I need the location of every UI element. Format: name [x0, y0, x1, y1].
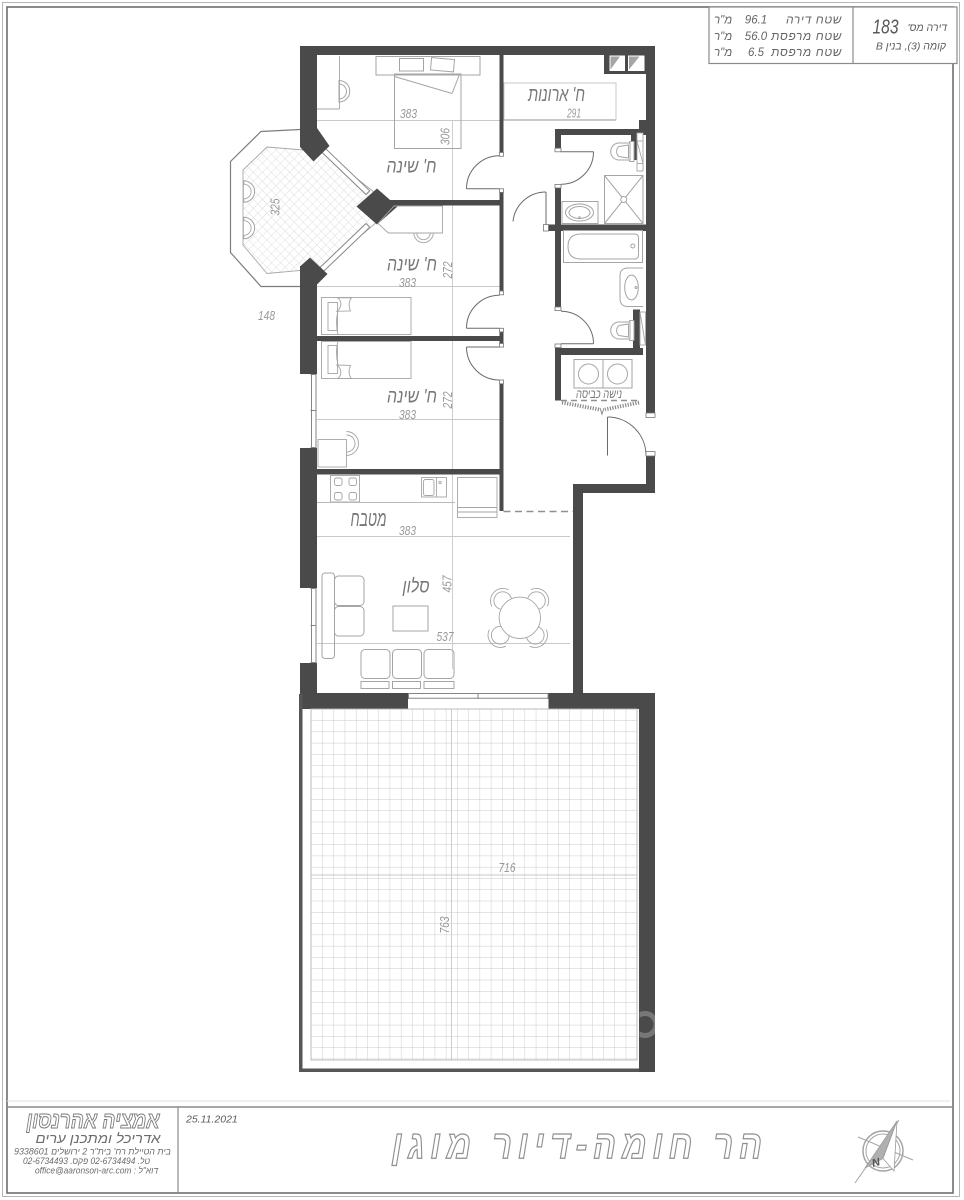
svg-text:716: 716	[499, 861, 516, 875]
svg-text:383: 383	[399, 276, 416, 290]
svg-text:שטח דירה: שטח דירה	[786, 13, 843, 27]
svg-text:מ"ר: מ"ר	[714, 47, 732, 59]
svg-text:מ"ר: מ"ר	[714, 31, 732, 43]
svg-text:ח' ארונות: ח' ארונות	[527, 84, 585, 106]
svg-text:25.11.2021: 25.11.2021	[185, 1114, 238, 1126]
svg-text:183: 183	[873, 17, 899, 39]
svg-text:272: 272	[441, 261, 455, 279]
svg-text:383: 383	[399, 524, 416, 538]
svg-text:קומה (3), בנין B: קומה (3), בנין B	[876, 41, 946, 53]
svg-text:383: 383	[399, 408, 416, 422]
svg-text:272: 272	[441, 391, 455, 409]
svg-text:נישה כביסה: נישה כביסה	[576, 387, 622, 401]
svg-text:מ"ר: מ"ר	[714, 15, 732, 27]
svg-text:בית הטיילת רח' בית"ר 2 ירושל: בית הטיילת רח' בית"ר 2 ירושלים 9338601	[14, 1147, 171, 1157]
svg-text:ח' שינה: ח' שינה	[387, 254, 437, 276]
svg-text:ח' שינה: ח' שינה	[387, 156, 437, 178]
svg-text:457: 457	[441, 575, 455, 593]
svg-text:56.0: 56.0	[745, 31, 768, 43]
svg-text:306: 306	[439, 128, 453, 145]
svg-text:אמציה אהרנסון: אמציה אהרנסון	[26, 1107, 161, 1133]
svg-text:שטח מרפסת: שטח מרפסת	[770, 29, 843, 43]
svg-text:148: 148	[258, 309, 275, 323]
svg-text:טל. 02-6734494 פקס. 02-6734493: טל. 02-6734494 פקס. 02-6734493	[23, 1156, 150, 1166]
svg-text:6.5: 6.5	[748, 47, 765, 59]
svg-text:אדריכל ומתכנן ערים: אדריכל ומתכנן ערים	[36, 1131, 162, 1146]
svg-text:383: 383	[400, 107, 417, 121]
svg-text:סלון: סלון	[402, 577, 430, 598]
svg-text:96.1: 96.1	[745, 15, 767, 27]
svg-text:ח' שינה: ח' שינה	[387, 386, 437, 408]
svg-text:291: 291	[566, 107, 581, 121]
svg-text:שטח מרפסת: שטח מרפסת	[770, 45, 843, 59]
svg-text:דירה מס': דירה מס'	[907, 22, 948, 34]
svg-text:מטבח: מטבח	[351, 506, 387, 531]
svg-text:763: 763	[438, 916, 452, 933]
svg-text:דוא"ל : office@aaronson-arc.co: דוא"ל : office@aaronson-arc.com	[35, 1166, 159, 1176]
svg-text:537: 537	[437, 630, 455, 644]
svg-text:325: 325	[269, 198, 283, 215]
svg-text:הר חומה-דיור מוגן: הר חומה-דיור מוגן	[391, 1123, 768, 1167]
